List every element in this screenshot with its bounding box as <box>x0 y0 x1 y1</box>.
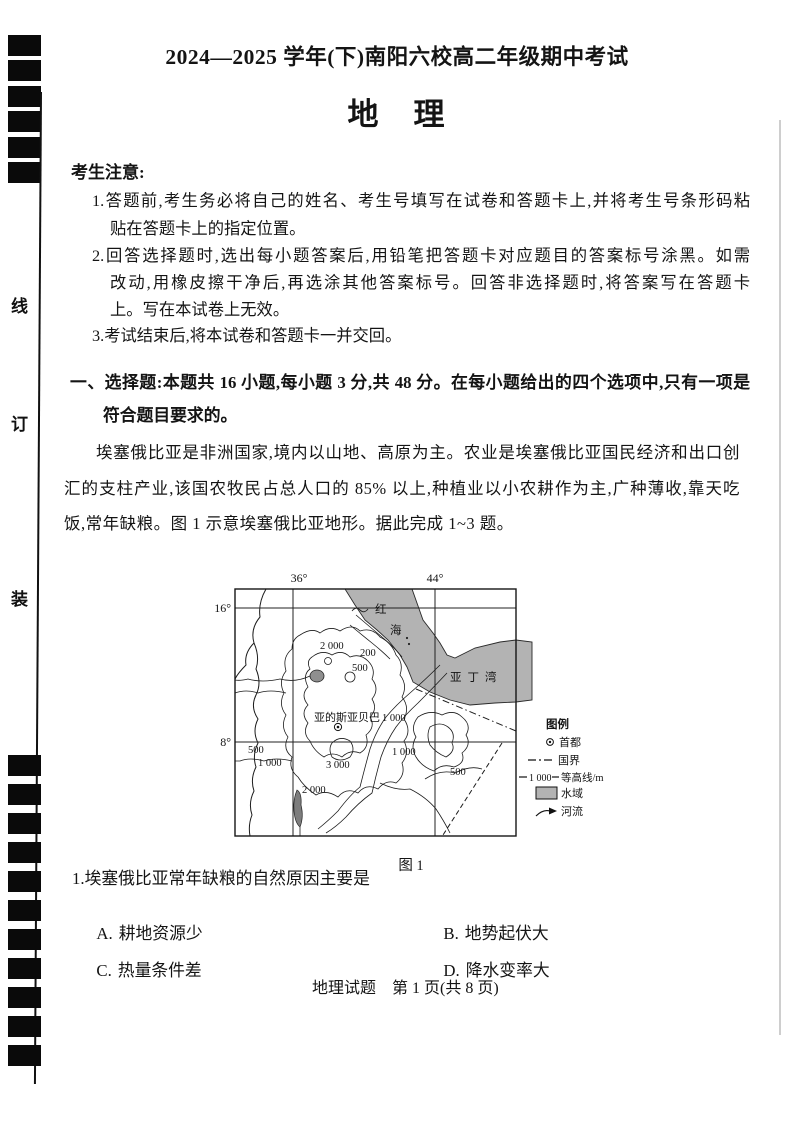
contour-label: 1 000 <box>392 747 416 758</box>
notice-line: 上。写在本试卷上无效。 <box>110 300 289 320</box>
registration-mark <box>8 929 41 950</box>
rift-lake <box>294 790 302 827</box>
lat-label-8: 8° <box>220 735 231 749</box>
passage-line: 汇的支柱产业,该国农牧民占总人口的 85% 以上,种植业以小农耕作为主,广种薄收… <box>64 479 740 499</box>
legend-border-label: 国界 <box>558 754 580 767</box>
notice-line: 1.答题前,考生务必将自己的姓名、考生号填写在试卷和答题卡上,并将考生号条形码粘 <box>92 191 750 211</box>
notice-line: 3.考试结束后,将本试卷和答题卡一并交回。 <box>92 326 401 346</box>
contour-2000-se <box>428 724 453 757</box>
legend-river-icon <box>536 811 550 816</box>
river-line-se <box>380 783 450 833</box>
option-key: C. <box>96 961 111 982</box>
legend-capital-label: 首都 <box>559 735 581 749</box>
ethiopia-map: 36° 44° 16° 8° 红 海 亚丁湾 亚的斯亚贝巴 1 000 2 00… <box>200 565 620 880</box>
island-dot <box>406 637 408 639</box>
binding-char-ding: 订 <box>11 410 28 435</box>
exam-page: { "header": { "exam_session": "2024—2025… <box>0 0 794 1122</box>
page-edge-line <box>779 120 781 1035</box>
passage-line: 饭,常年缺粮。图 1 示意埃塞俄比亚地形。据此完成 1~3 题。 <box>64 514 514 535</box>
subject-title: 地 理 <box>0 96 794 135</box>
registration-mark <box>8 1016 41 1037</box>
lon-label-44: 44° <box>427 571 444 585</box>
legend-water-label: 水域 <box>561 787 583 800</box>
contour-label: 2 000 <box>320 641 344 652</box>
legend-water-icon <box>536 787 557 799</box>
contour-label: 200 <box>360 648 376 659</box>
registration-mark <box>8 958 41 979</box>
registration-mark <box>8 755 41 776</box>
question1-option-b: B.地势起伏大 <box>435 903 549 945</box>
capital-marker <box>334 723 341 730</box>
lat-label-16: 16° <box>214 601 231 615</box>
border-line-west <box>249 643 259 836</box>
question1-option-a: A.耕地资源少 <box>88 903 203 945</box>
legend-contour-label: 等高线/m <box>561 771 604 784</box>
registration-mark <box>8 842 41 863</box>
figure-caption: 图 1 <box>398 858 423 874</box>
contour-peak <box>325 658 332 665</box>
rift-valley-line <box>326 673 447 833</box>
contour-label: 2 000 <box>302 785 326 796</box>
question1-option-c: C.热量条件差 <box>88 940 202 982</box>
capital-name-label: 亚的斯亚贝巴 <box>314 710 380 724</box>
option-label: 降水变率大 <box>466 961 550 980</box>
exam-session-title: 2024—2025 学年(下)南阳六校高二年级期中考试 <box>0 44 794 71</box>
registration-mark <box>8 987 41 1008</box>
registration-mark <box>8 784 41 805</box>
registration-mark <box>8 1045 41 1066</box>
legend-title: 图例 <box>546 717 569 731</box>
river-line <box>235 676 310 681</box>
contour-label: 3 000 <box>326 760 350 771</box>
red-sea-label-char1: 红 <box>375 603 387 616</box>
island-dot <box>408 643 410 645</box>
registration-mark <box>8 162 41 183</box>
contour-label: 500 <box>450 767 466 778</box>
map-legend: 图例 首都 国界 1 000 等高线/m 水域 河流 <box>519 717 604 818</box>
notice-line: 改动,用橡皮擦干净后,再选涂其他答案标号。回答非选择题时,将答案写在答题卡 <box>110 273 750 293</box>
red-sea-label-char2: 海 <box>390 623 402 637</box>
lake-tana <box>310 670 324 682</box>
binding-char-xian: 线 <box>11 292 28 317</box>
question1-option-d: D.降水变率大 <box>435 940 550 982</box>
registration-mark <box>8 871 41 892</box>
option-label: 热量条件差 <box>118 961 202 980</box>
ethiopia-map-figure: 36° 44° 16° 8° 红 海 亚丁湾 亚的斯亚贝巴 1 000 2 00… <box>200 545 620 860</box>
border-line-nw <box>235 589 266 679</box>
rift-valley-line <box>318 665 440 829</box>
contour-label: 500 <box>248 745 264 756</box>
border-line-se <box>443 743 502 835</box>
passage-line: 埃塞俄比亚是非洲国家,境内以山地、高原为主。农业是埃塞俄比亚国民经济和出口创 <box>96 443 740 463</box>
notice-line: 2.回答选择题时,选出每小题答案后,用铅笔把答题卡对应题目的答案标号涂黑。如需 <box>92 246 750 266</box>
river-line <box>235 691 286 693</box>
legend-capital-icon-dot <box>549 741 551 743</box>
registration-mark <box>8 900 41 921</box>
legend-river-arrowhead <box>549 808 557 815</box>
binding-char-zhuang: 装 <box>11 585 28 610</box>
legend-contour-value: 1 000 <box>529 773 552 784</box>
section1-heading-line1: 一、选择题:本题共 16 小题,每小题 3 分,共 48 分。在每小题给出的四个… <box>70 373 750 393</box>
red-sea-and-gulf-of-aden <box>345 589 532 705</box>
question1-stem: 1.埃塞俄比亚常年缺粮的自然原因主要是 <box>72 869 370 890</box>
contour-label-addis: 1 000 <box>382 713 406 724</box>
contour-label: 500 <box>352 663 368 674</box>
gulf-of-aden-label: 亚丁湾 <box>450 670 503 684</box>
page-footer: 地理试题 第 1 页(共 8 页) <box>312 979 499 999</box>
capital-symbol-dot <box>337 726 340 729</box>
contour-lines <box>281 615 482 833</box>
registration-mark <box>8 137 41 158</box>
notice-heading: 考生注意: <box>71 162 145 183</box>
lon-label-36: 36° <box>291 571 308 585</box>
contour-label: 1 000 <box>258 758 282 769</box>
notice-line: 贴在答题卡上的指定位置。 <box>110 219 305 239</box>
section1-heading-line2: 符合题目要求的。 <box>103 406 237 427</box>
registration-mark <box>8 813 41 834</box>
legend-river-label: 河流 <box>561 804 583 818</box>
